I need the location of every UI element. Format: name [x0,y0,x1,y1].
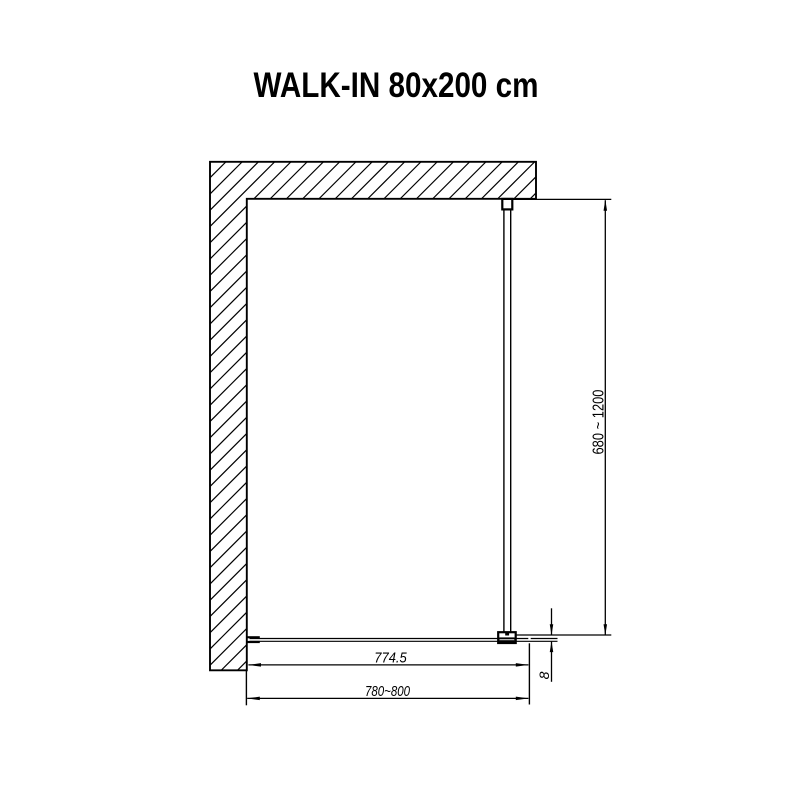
svg-text:8: 8 [536,671,552,679]
svg-text:774.5: 774.5 [374,649,407,666]
svg-text:680 ~ 1200: 680 ~ 1200 [590,389,607,454]
svg-text:WALK-IN 80x200 cm: WALK-IN 80x200 cm [254,66,539,105]
svg-text:780~800: 780~800 [365,683,410,700]
